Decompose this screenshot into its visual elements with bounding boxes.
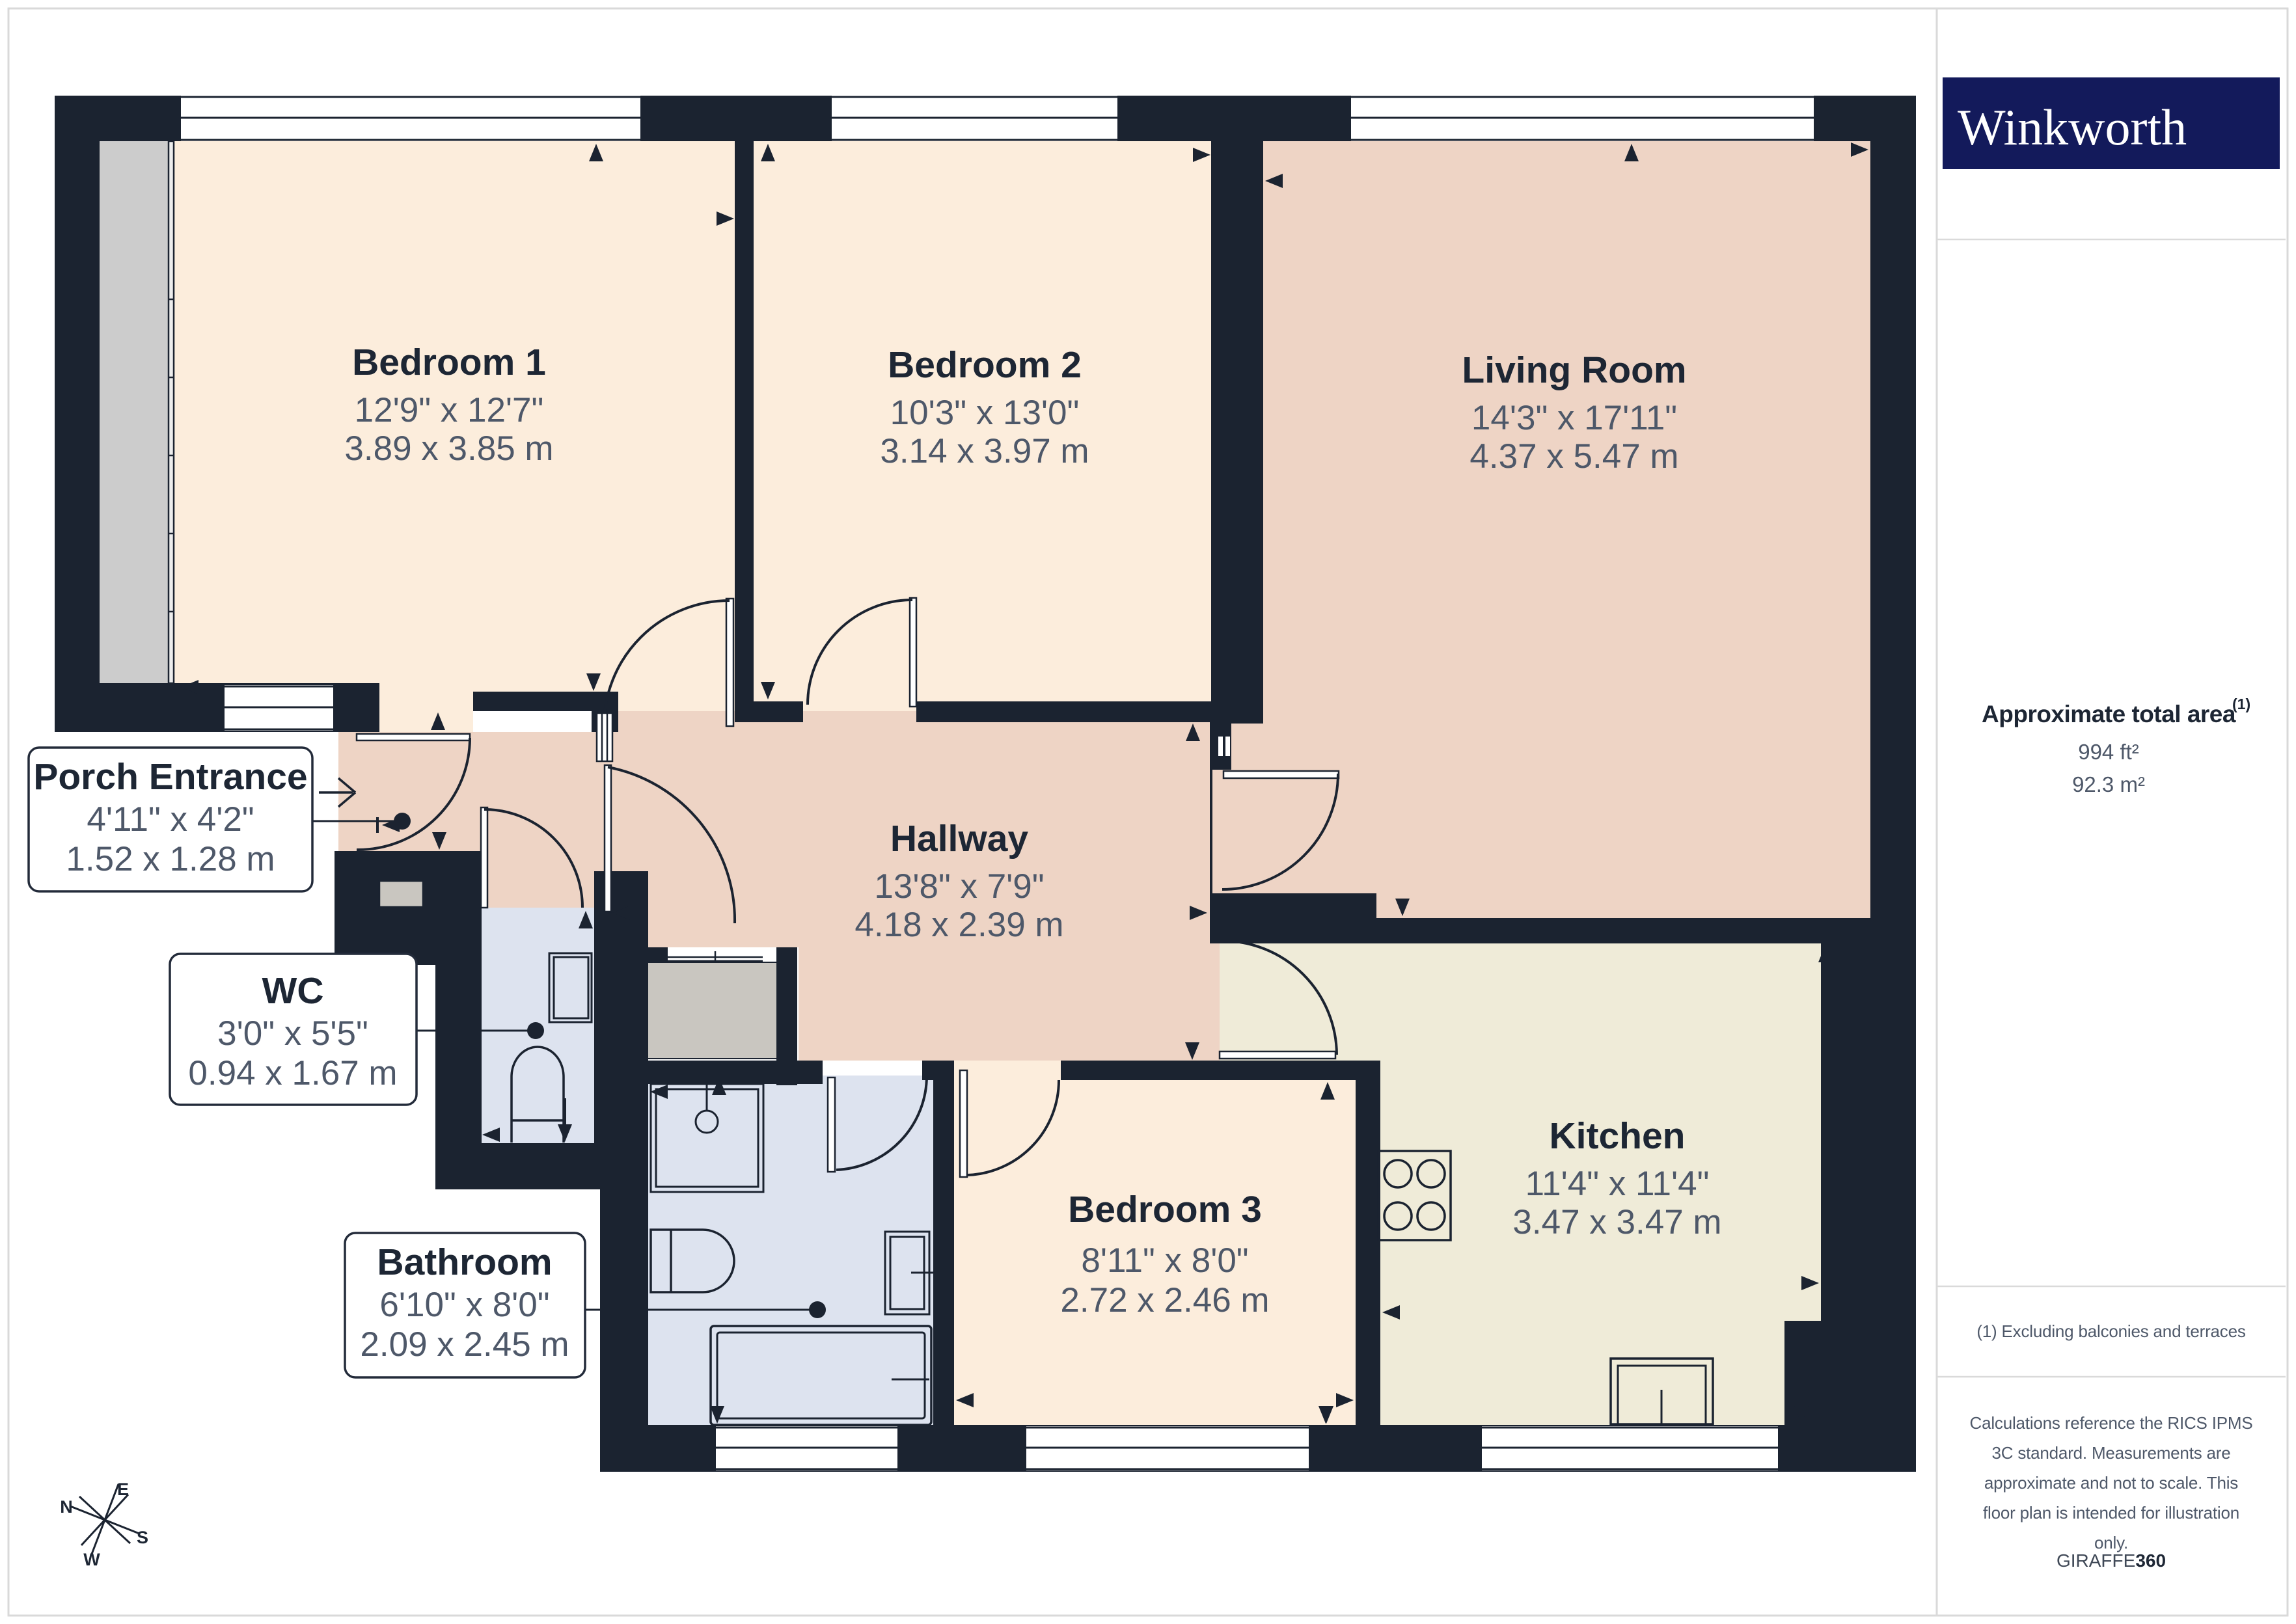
svg-text:10'3" x 13'0": 10'3" x 13'0" <box>890 394 1080 432</box>
svg-text:floor plan is intended for ill: floor plan is intended for illustration <box>1983 1503 2239 1522</box>
svg-text:Living Room: Living Room <box>1462 349 1686 391</box>
svg-text:3.89 x 3.85 m: 3.89 x 3.85 m <box>344 429 553 468</box>
svg-text:Bedroom 1: Bedroom 1 <box>352 342 546 383</box>
svg-text:3C standard. Measurements are: 3C standard. Measurements are <box>1991 1443 2230 1463</box>
svg-text:Bedroom 2: Bedroom 2 <box>888 344 1082 386</box>
svg-text:0.94 x 1.67 m: 0.94 x 1.67 m <box>188 1054 397 1092</box>
svg-text:Hallway: Hallway <box>890 818 1029 859</box>
svg-text:6'10" x 8'0": 6'10" x 8'0" <box>379 1286 549 1324</box>
svg-text:4.37 x 5.47 m: 4.37 x 5.47 m <box>1469 437 1678 476</box>
svg-text:14'3" x 17'11": 14'3" x 17'11" <box>1471 399 1677 437</box>
svg-text:WC: WC <box>262 970 324 1012</box>
svg-text:Winkworth: Winkworth <box>1958 99 2187 156</box>
svg-text:Bedroom 3: Bedroom 3 <box>1068 1189 1262 1230</box>
svg-text:3.47 x 3.47 m: 3.47 x 3.47 m <box>1512 1203 1721 1241</box>
svg-text:13'8" x 7'9": 13'8" x 7'9" <box>874 867 1044 906</box>
svg-text:2.72 x 2.46 m: 2.72 x 2.46 m <box>1060 1281 1269 1319</box>
svg-text:4.18 x 2.39 m: 4.18 x 2.39 m <box>854 906 1063 944</box>
svg-text:(1): (1) <box>2232 696 2250 712</box>
svg-text:Calculations reference the RIC: Calculations reference the RICS IPMS <box>1970 1413 2253 1433</box>
svg-text:12'9" x 12'7": 12'9" x 12'7" <box>355 391 544 429</box>
svg-text:N: N <box>60 1497 73 1517</box>
svg-text:4'11" x 4'2": 4'11" x 4'2" <box>87 800 254 839</box>
svg-text:S: S <box>137 1528 148 1547</box>
svg-text:GIRAFFE360: GIRAFFE360 <box>2057 1550 2166 1571</box>
svg-text:92.3 m²: 92.3 m² <box>2072 772 2145 796</box>
svg-text:E: E <box>117 1480 129 1499</box>
svg-text:3.14 x 3.97 m: 3.14 x 3.97 m <box>880 432 1089 470</box>
svg-text:W: W <box>83 1550 100 1569</box>
svg-text:only.: only. <box>2094 1533 2128 1552</box>
svg-text:Approximate total area: Approximate total area <box>1982 701 2236 727</box>
svg-text:Bathroom: Bathroom <box>377 1241 552 1283</box>
svg-text:Kitchen: Kitchen <box>1549 1115 1685 1157</box>
svg-text:(1) Excluding balconies and te: (1) Excluding balconies and terraces <box>1976 1321 2246 1341</box>
svg-text:1.52 x 1.28 m: 1.52 x 1.28 m <box>66 840 275 878</box>
svg-text:2.09 x 2.45 m: 2.09 x 2.45 m <box>360 1325 569 1364</box>
svg-text:Porch Entrance: Porch Entrance <box>33 756 307 798</box>
svg-text:8'11" x 8'0": 8'11" x 8'0" <box>1081 1241 1248 1280</box>
svg-text:11'4" x 11'4": 11'4" x 11'4" <box>1525 1165 1710 1203</box>
svg-text:approximate and not to scale.: approximate and not to scale. This <box>1984 1473 2238 1493</box>
svg-text:994 ft²: 994 ft² <box>2078 740 2139 764</box>
svg-text:3'0" x 5'5": 3'0" x 5'5" <box>217 1014 368 1053</box>
